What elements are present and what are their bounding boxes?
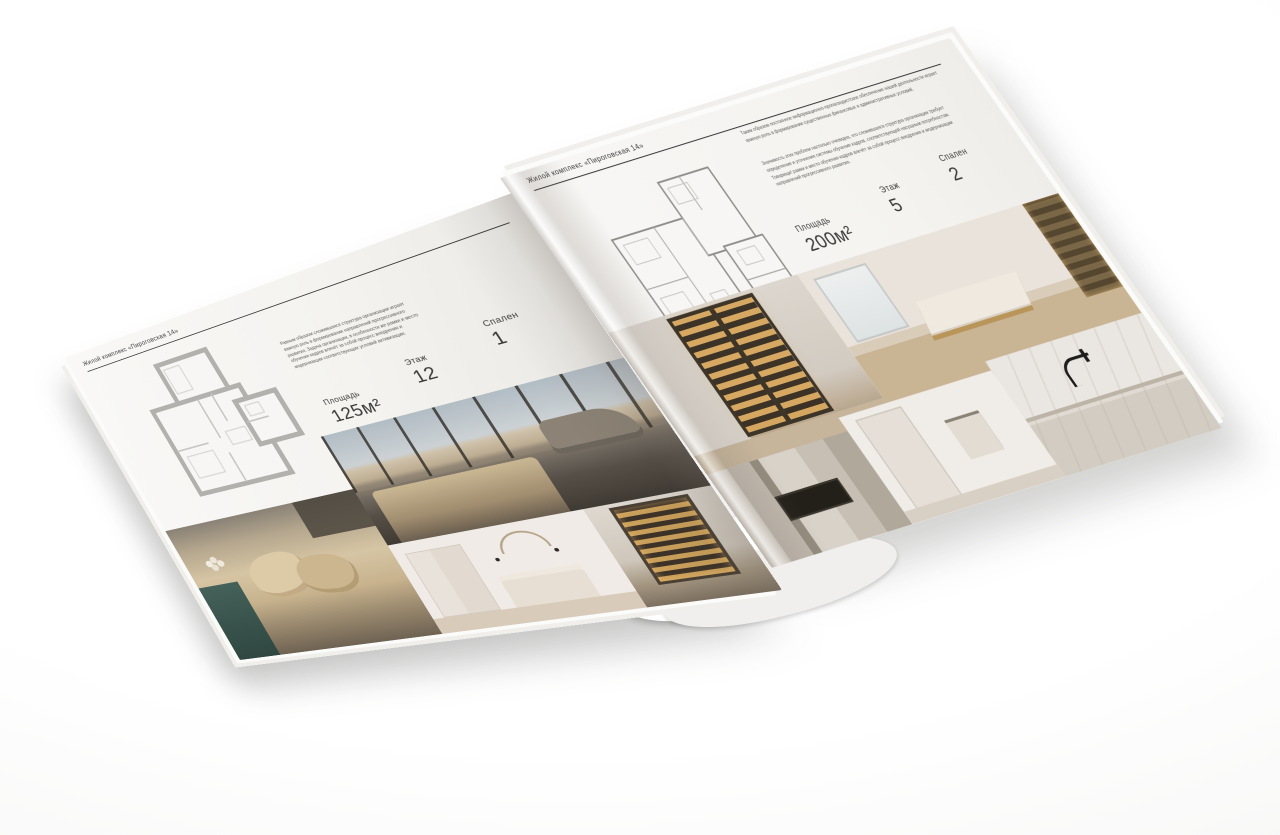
left-spec-area: Площадь 125м² <box>322 386 387 427</box>
right-spec-bedrooms-value: 2 <box>944 158 985 187</box>
left-spec-floor-value: 12 <box>409 363 443 388</box>
right-spec-area: Площадь 200м² <box>793 211 860 257</box>
left-spec-floor: Этаж 12 <box>403 353 443 388</box>
magazine-mockup-scene: Жилой комплекс «Пироговская 14» <box>0 0 1280 835</box>
right-paragraph-2: Значимость этих проблем настолько очевид… <box>760 99 982 189</box>
right-spec-floor: Этаж 5 <box>877 180 918 218</box>
right-spec-floor-value: 5 <box>885 192 917 218</box>
left-spec-bedrooms: Спален 1 <box>481 310 536 350</box>
right-spec-bedrooms: Спален 2 <box>936 146 985 186</box>
